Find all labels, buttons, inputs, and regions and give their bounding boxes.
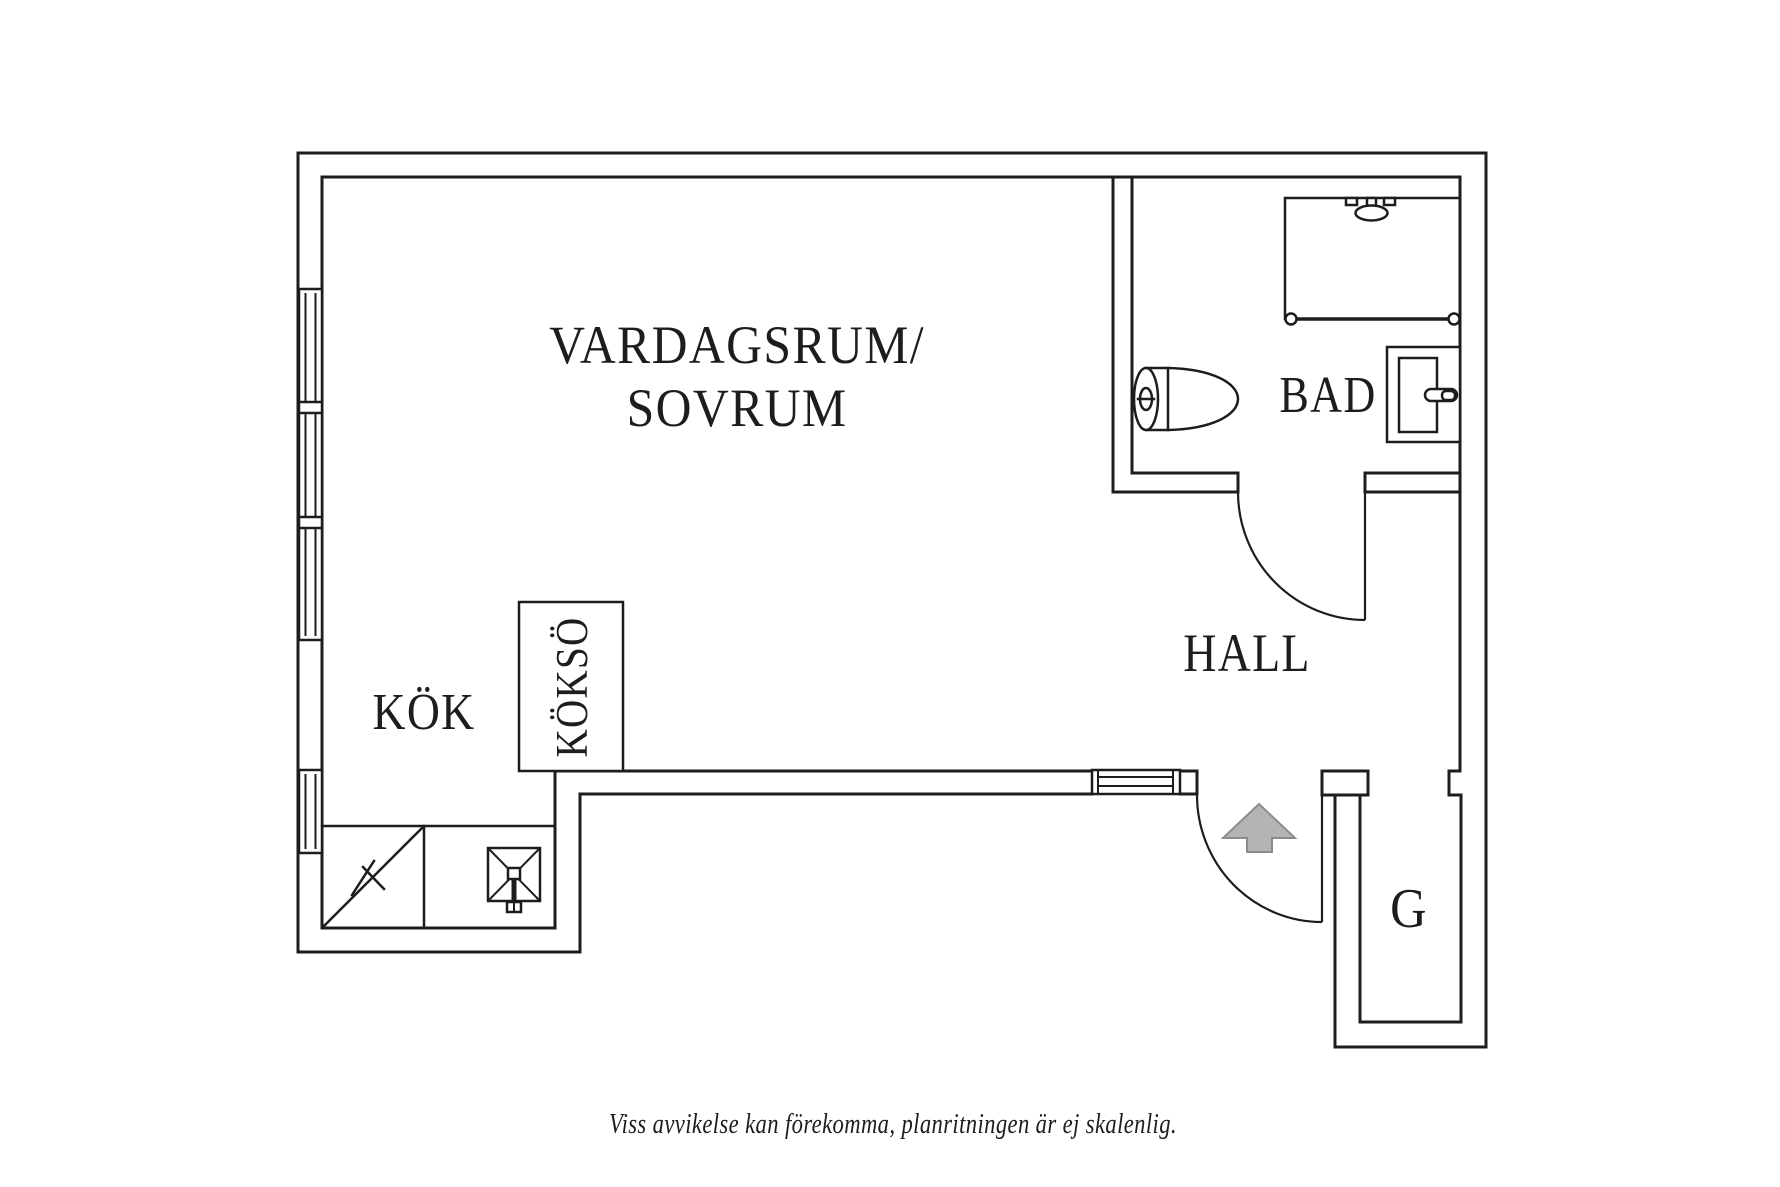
- kitchen-label: KÖK: [372, 682, 475, 740]
- living-room-label-line1: VARDAGSRUM/: [549, 316, 925, 375]
- wall-pier: [1322, 771, 1368, 795]
- disclaimer-caption: Viss avvikelse kan förekomma, planritnin…: [609, 1107, 1177, 1139]
- kitchen-counter: [322, 826, 555, 928]
- walls: [298, 153, 1486, 1047]
- shower: [1285, 198, 1460, 325]
- window-icon: [1092, 770, 1180, 794]
- bathroom-door: [1238, 492, 1365, 620]
- floor-plan-svg: VARDAGSRUM/ SOVRUM KÖK KÖKSÖ BAD HALL G …: [0, 0, 1780, 1187]
- wardrobe-label: G: [1390, 878, 1428, 940]
- window-icon: [299, 289, 322, 640]
- toilet-icon: [1134, 368, 1238, 430]
- entrance-arrow-icon: [1223, 804, 1295, 852]
- wall-entry-jamb: [1180, 771, 1197, 794]
- floor-plan-page: VARDAGSRUM/ SOVRUM KÖK KÖKSÖ BAD HALL G …: [0, 0, 1780, 1187]
- living-room-label-line2: SOVRUM: [627, 379, 848, 438]
- door-swing-icon: [1238, 492, 1365, 620]
- kitchen-island-label: KÖKSÖ: [547, 616, 598, 757]
- window-icon: [299, 770, 322, 853]
- shower-glass-hinge: [1449, 314, 1460, 325]
- kitchen-sink-icon: [488, 848, 540, 912]
- counter-diagonal-mark-icon: [324, 828, 422, 926]
- toilet-bowl: [1168, 368, 1238, 430]
- wall-bathroom-bottom-right: [1365, 473, 1460, 492]
- wall-inner-main: [322, 177, 1460, 928]
- shower-glass-hinge: [1286, 314, 1297, 325]
- washbasin-icon: [1387, 347, 1460, 442]
- bathroom-label: BAD: [1279, 367, 1376, 424]
- hall-label: HALL: [1183, 623, 1310, 683]
- shower-head-icon: [1346, 198, 1395, 221]
- wall-bathroom-partition: [1113, 177, 1238, 492]
- wall-outer: [298, 153, 1486, 1047]
